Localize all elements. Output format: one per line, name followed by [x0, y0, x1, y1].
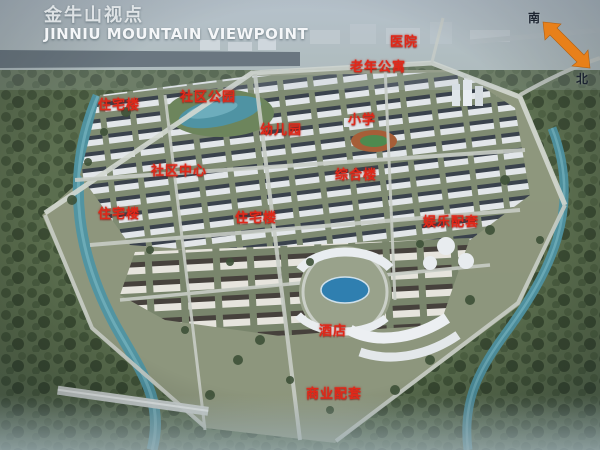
title-chinese: 金牛山视点 [44, 6, 308, 26]
page-title: 金牛山视点 JINNIU MOUNTAIN VIEWPOINT [44, 6, 308, 42]
compass-north-label: 北 [576, 70, 588, 87]
compass-south-label: 南 [528, 9, 540, 26]
title-english: JINNIU MOUNTAIN VIEWPOINT [44, 26, 308, 43]
aerial-masterplan-view: 金牛山视点 JINNIU MOUNTAIN VIEWPOINT 南 北 医院老年… [0, 0, 600, 450]
masterplan-rendering [0, 0, 600, 450]
